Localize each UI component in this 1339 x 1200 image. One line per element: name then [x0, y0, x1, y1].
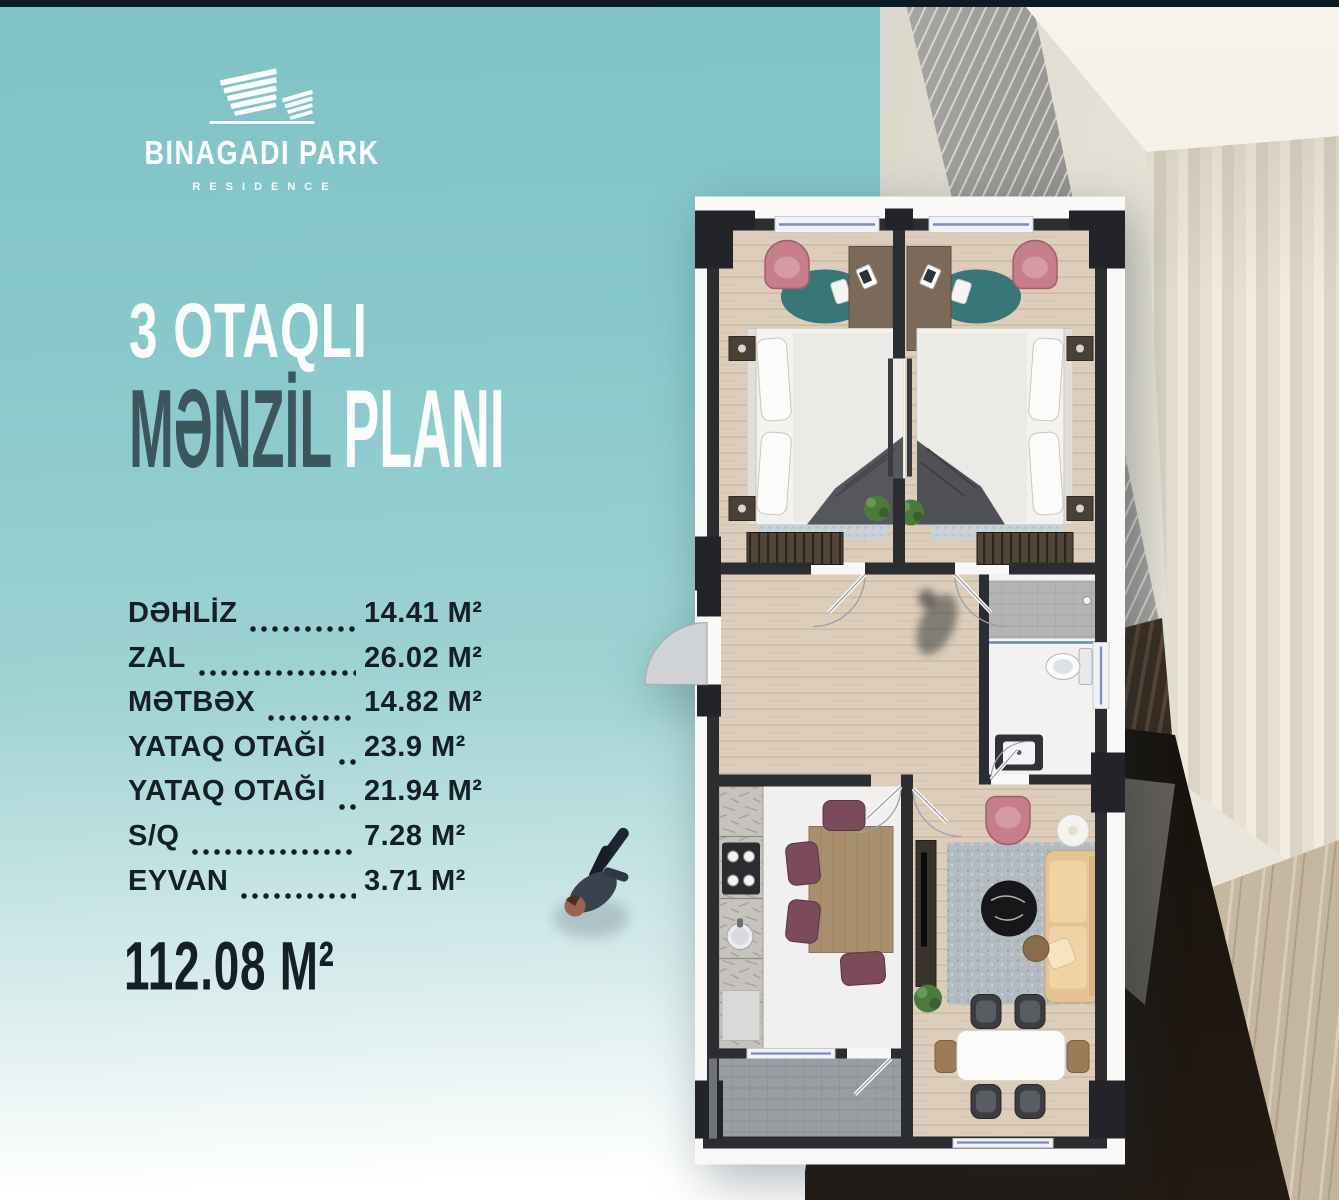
dots-leader: [249, 625, 356, 633]
wardrobe: [747, 533, 843, 565]
brand-name: BINAGADI PARK: [112, 134, 412, 173]
floor-plan: [635, 196, 1125, 1165]
plant-icon: [864, 496, 890, 522]
room-value: 14.82 M²: [364, 686, 484, 719]
floor-lamp-icon: [1057, 815, 1089, 847]
room-label: EYVAN: [128, 865, 228, 898]
sliding-door: [907, 359, 912, 477]
pillow: [1028, 338, 1064, 422]
room-value: 3.71 M²: [364, 865, 484, 898]
dots-leader: [198, 669, 356, 677]
room-label: ZAL: [128, 642, 186, 675]
dots-leader: [267, 714, 356, 722]
dots-leader: [191, 848, 356, 856]
room-value: 26.02 M²: [364, 642, 484, 675]
armchair-pink: [1013, 241, 1057, 289]
flyer-canvas: BINAGADI PARK RESIDENCE 3 OTAQLI MƏNZİLP…: [0, 0, 1339, 1200]
room-area-list: DƏHLİZ 14.41 M² ZAL 26.02 M² MƏTBƏX 14.8…: [128, 597, 484, 909]
building-logo-icon: [192, 60, 332, 134]
balcony-rail: [709, 1059, 717, 1139]
room-row: ZAL 26.02 M²: [128, 642, 484, 687]
headline-line1: 3 OTAQLI: [129, 286, 368, 375]
sliding-door: [888, 359, 893, 477]
chair-purple: [840, 951, 886, 986]
pillow: [756, 432, 792, 516]
tv-icon: [921, 853, 927, 947]
dots-leader: [338, 803, 356, 811]
room-row: YATAQ OTAĞI 23.9 M²: [128, 731, 484, 776]
total-area: 112.08 M²: [124, 928, 335, 1006]
room-row: DƏHLİZ 14.41 M²: [128, 597, 484, 642]
brand-subtitle: RESIDENCE: [112, 181, 412, 193]
chair-purple: [785, 899, 821, 944]
room-row: MƏTBƏX 14.82 M²: [128, 686, 484, 731]
armchair-pink: [765, 241, 809, 289]
wood-chair: [935, 1041, 957, 1073]
wardrobe: [977, 533, 1073, 565]
armchair-pink: [986, 797, 1030, 845]
dots-leader: [240, 892, 356, 900]
room-row: EYVAN 3.71 M²: [128, 865, 484, 910]
sofa: [1043, 851, 1101, 1003]
top-bar: [0, 0, 1339, 7]
room-value: 7.28 M²: [364, 820, 484, 853]
dining-table: [957, 1031, 1065, 1081]
plant-icon: [914, 985, 942, 1013]
brand-logo: BINAGADI PARK RESIDENCE: [112, 60, 412, 193]
kitchen-table: [809, 827, 893, 953]
headline-line2-primary: MƏNZİL: [129, 367, 332, 491]
dots-leader: [338, 758, 356, 766]
wood-chair: [1067, 1041, 1089, 1073]
room-value: 14.41 M²: [364, 597, 484, 630]
room-row: YATAQ OTAĞI 21.94 M²: [128, 775, 484, 820]
headline-line2: MƏNZİLPLANI: [129, 366, 505, 494]
pillow: [756, 338, 792, 422]
room-label: DƏHLİZ: [128, 597, 237, 630]
room-label: MƏTBƏX: [128, 686, 255, 719]
headline-line2-secondary: PLANI: [343, 367, 504, 491]
chair-purple: [785, 841, 821, 886]
entry-door-swing: [645, 623, 707, 685]
chair-purple: [823, 801, 865, 831]
room-label: YATAQ OTAĞI: [128, 775, 326, 808]
stove-icon: [722, 843, 760, 895]
room-label: S/Q: [128, 820, 179, 853]
fridge: [722, 991, 760, 1041]
room-row: S/Q 7.28 M²: [128, 820, 484, 865]
room-value: 21.94 M²: [364, 775, 484, 808]
room-value: 23.9 M²: [364, 731, 484, 764]
pillow: [1028, 432, 1064, 516]
floor-plan-drawing: [635, 196, 1125, 1165]
room-label: YATAQ OTAĞI: [128, 731, 326, 764]
